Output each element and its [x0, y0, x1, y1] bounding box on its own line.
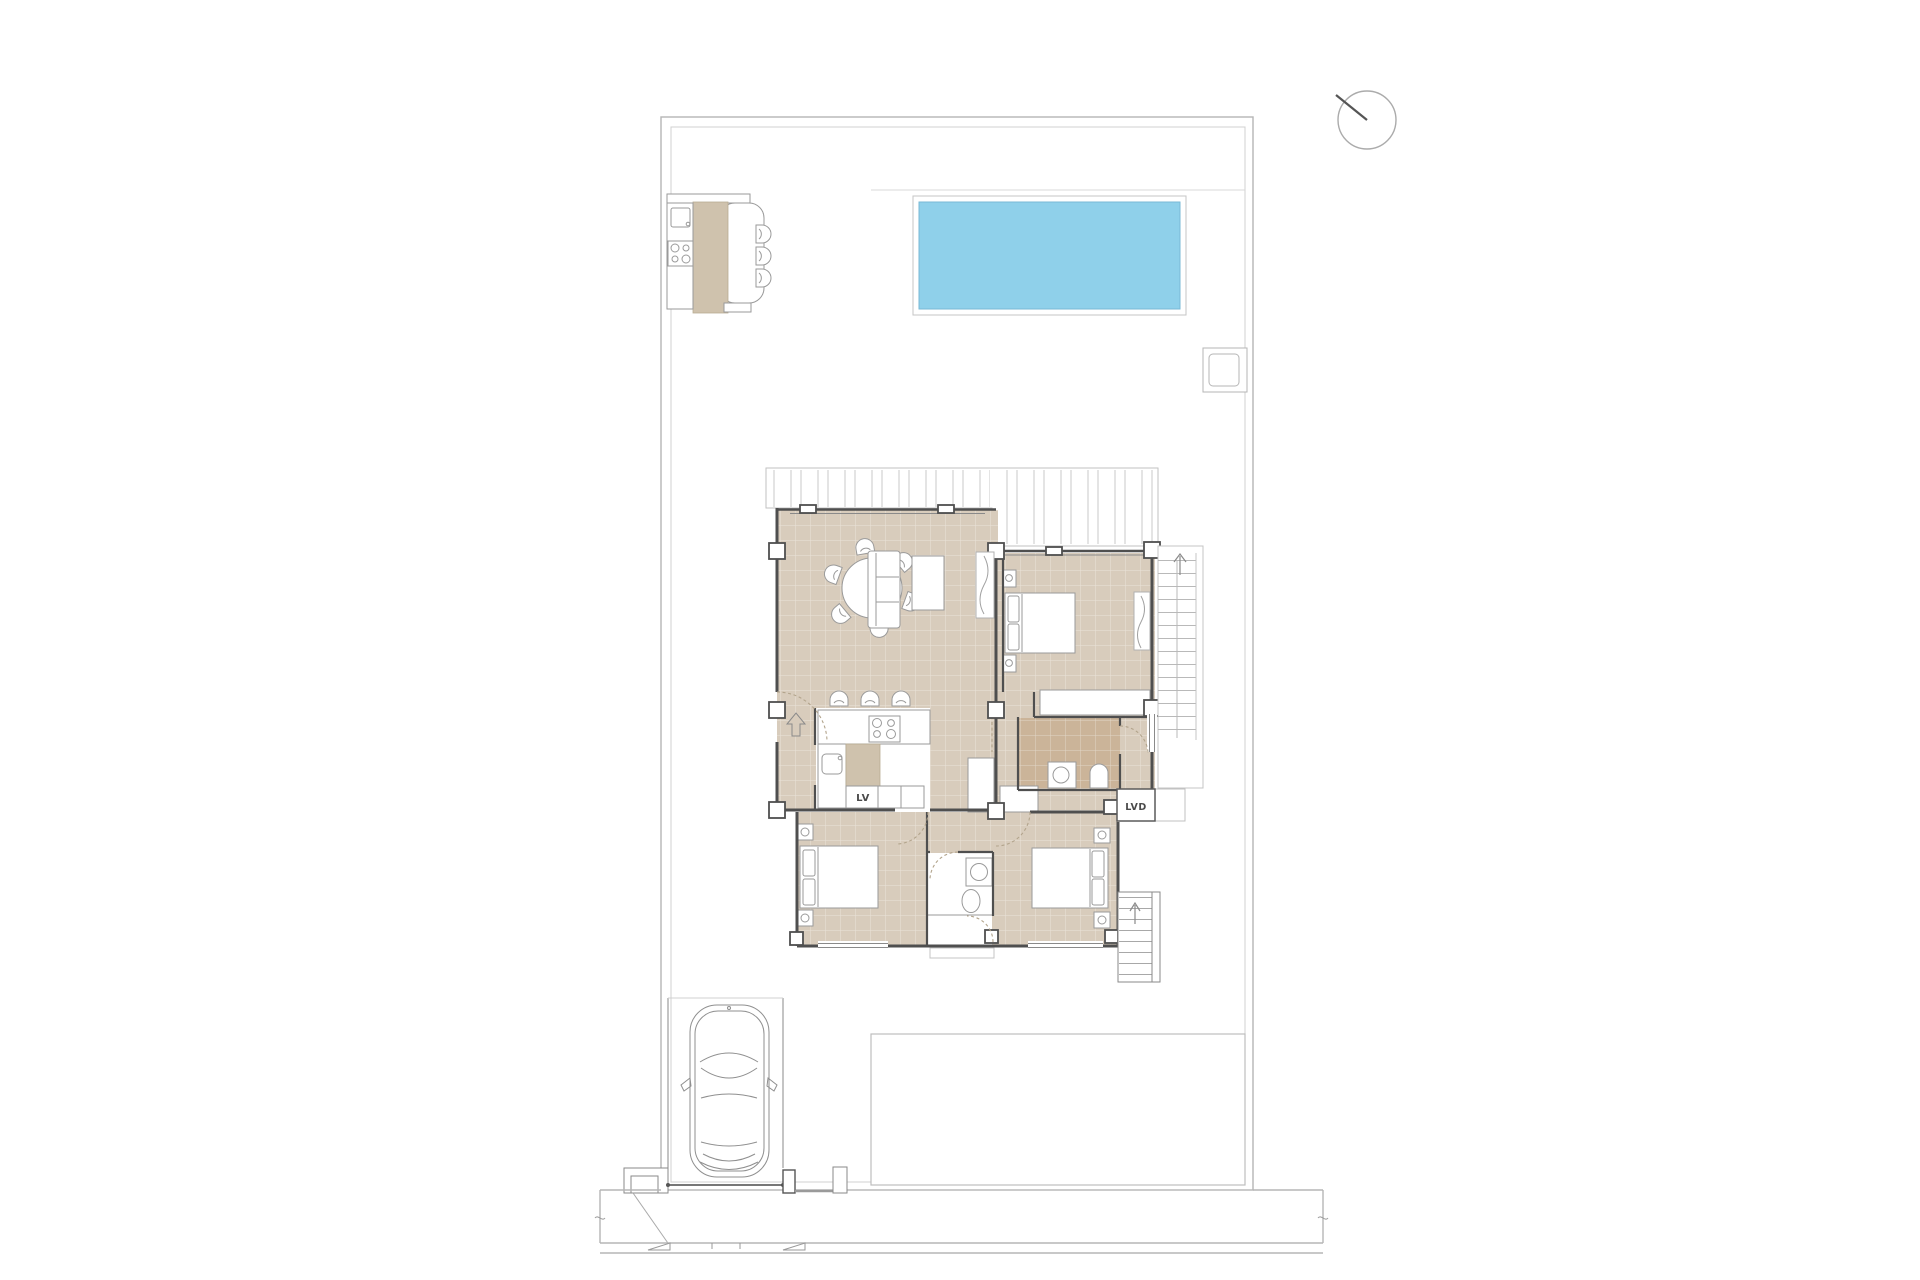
carport [668, 998, 783, 1168]
curb-mark [783, 1243, 805, 1250]
outdoor-counter-top [693, 202, 728, 313]
outdoor-chair-icon [756, 225, 771, 243]
bar-stool-icon [830, 691, 848, 706]
nightstand [1003, 655, 1016, 672]
toilet-icon [962, 890, 980, 913]
nightstand [1094, 828, 1110, 843]
washbasin-icon [966, 858, 992, 886]
patio [871, 1034, 1245, 1185]
pool-equipment-box [1203, 348, 1247, 392]
wardrobe [1040, 690, 1150, 715]
coffee-table [912, 556, 944, 610]
driveway-ramp [633, 1193, 670, 1246]
nightstand [797, 910, 813, 926]
sofa [868, 551, 900, 628]
nightstand [797, 824, 813, 840]
exterior-staircase [1118, 892, 1160, 982]
curb-mark [648, 1243, 670, 1250]
kitchen-island [846, 744, 880, 786]
bar-stool-icon [861, 691, 879, 706]
toilet-icon [1090, 764, 1108, 788]
bed [1005, 593, 1075, 653]
laundry-unit: LVD [1117, 789, 1185, 821]
curtain-window [976, 552, 994, 618]
sidewalk [595, 1190, 1328, 1253]
outdoor-kitchen [667, 194, 771, 313]
outdoor-chair-icon [756, 247, 771, 265]
outdoor-chair-icon [756, 269, 771, 287]
washbasin-icon [1048, 762, 1076, 788]
swimming-pool [913, 196, 1186, 315]
floor-plan-canvas: LV [0, 0, 1920, 1280]
porch-step [930, 948, 994, 958]
curtain-window [1134, 592, 1150, 650]
staircase [1158, 546, 1203, 788]
pool-water [919, 202, 1180, 309]
nightstand [1094, 912, 1110, 928]
bed [1032, 848, 1108, 908]
car [681, 1005, 777, 1177]
laundry-label: LVD [1125, 802, 1146, 813]
bed [800, 846, 878, 908]
north-indicator [1336, 91, 1396, 149]
driveway-gate [624, 1167, 847, 1246]
nightstand [1003, 570, 1016, 587]
bar-stool-icon [892, 691, 910, 706]
dishwasher-label: LV [856, 793, 870, 804]
